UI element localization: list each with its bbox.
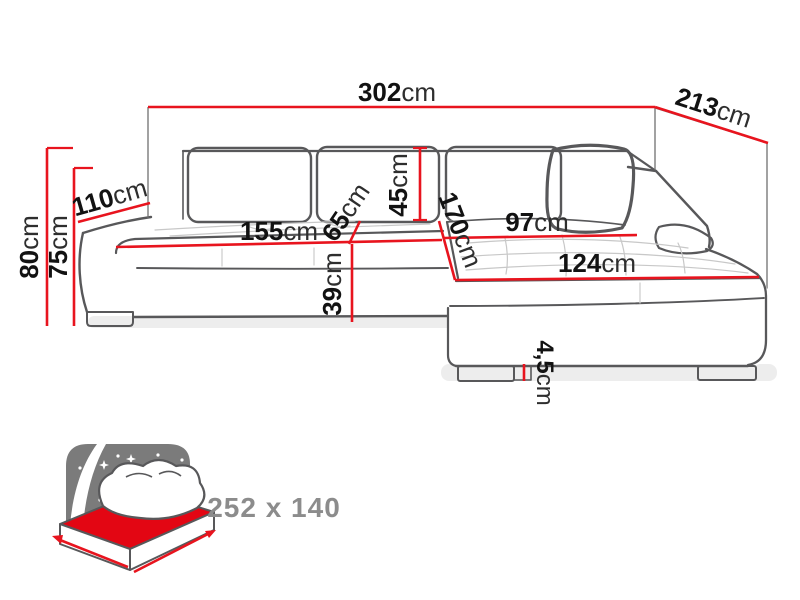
dimension-label-back-cushion-height: 45cm <box>383 153 413 217</box>
sofa-dimension-diagram: 302cm 213cm 80cm 75cm 110cm 155cm 65cm 4… <box>0 0 800 600</box>
dimension-label-total-height: 80cm <box>14 215 44 279</box>
duvet <box>99 460 204 519</box>
dimension-label-seat-width: 155cm <box>240 216 318 246</box>
dimension-label-chaise-seat-width: 97cm <box>505 207 569 237</box>
dimension-label-armrest-height: 75cm <box>43 215 73 279</box>
dimension-label-seat-height: 39cm <box>317 252 347 316</box>
dimension-label-leg-height: 4,5cm <box>531 340 558 405</box>
dimension-label-chaise-front-width: 124cm <box>558 248 636 278</box>
sofa-dimension-diagram-page: 302cm 213cm 80cm 75cm 110cm 155cm 65cm 4… <box>0 0 800 600</box>
sleeping-function-icon: 252 x 140 <box>52 444 341 572</box>
sleeping-area-size-label: 252 x 140 <box>207 492 341 523</box>
dimension-label-total-width: 302cm <box>358 77 436 107</box>
